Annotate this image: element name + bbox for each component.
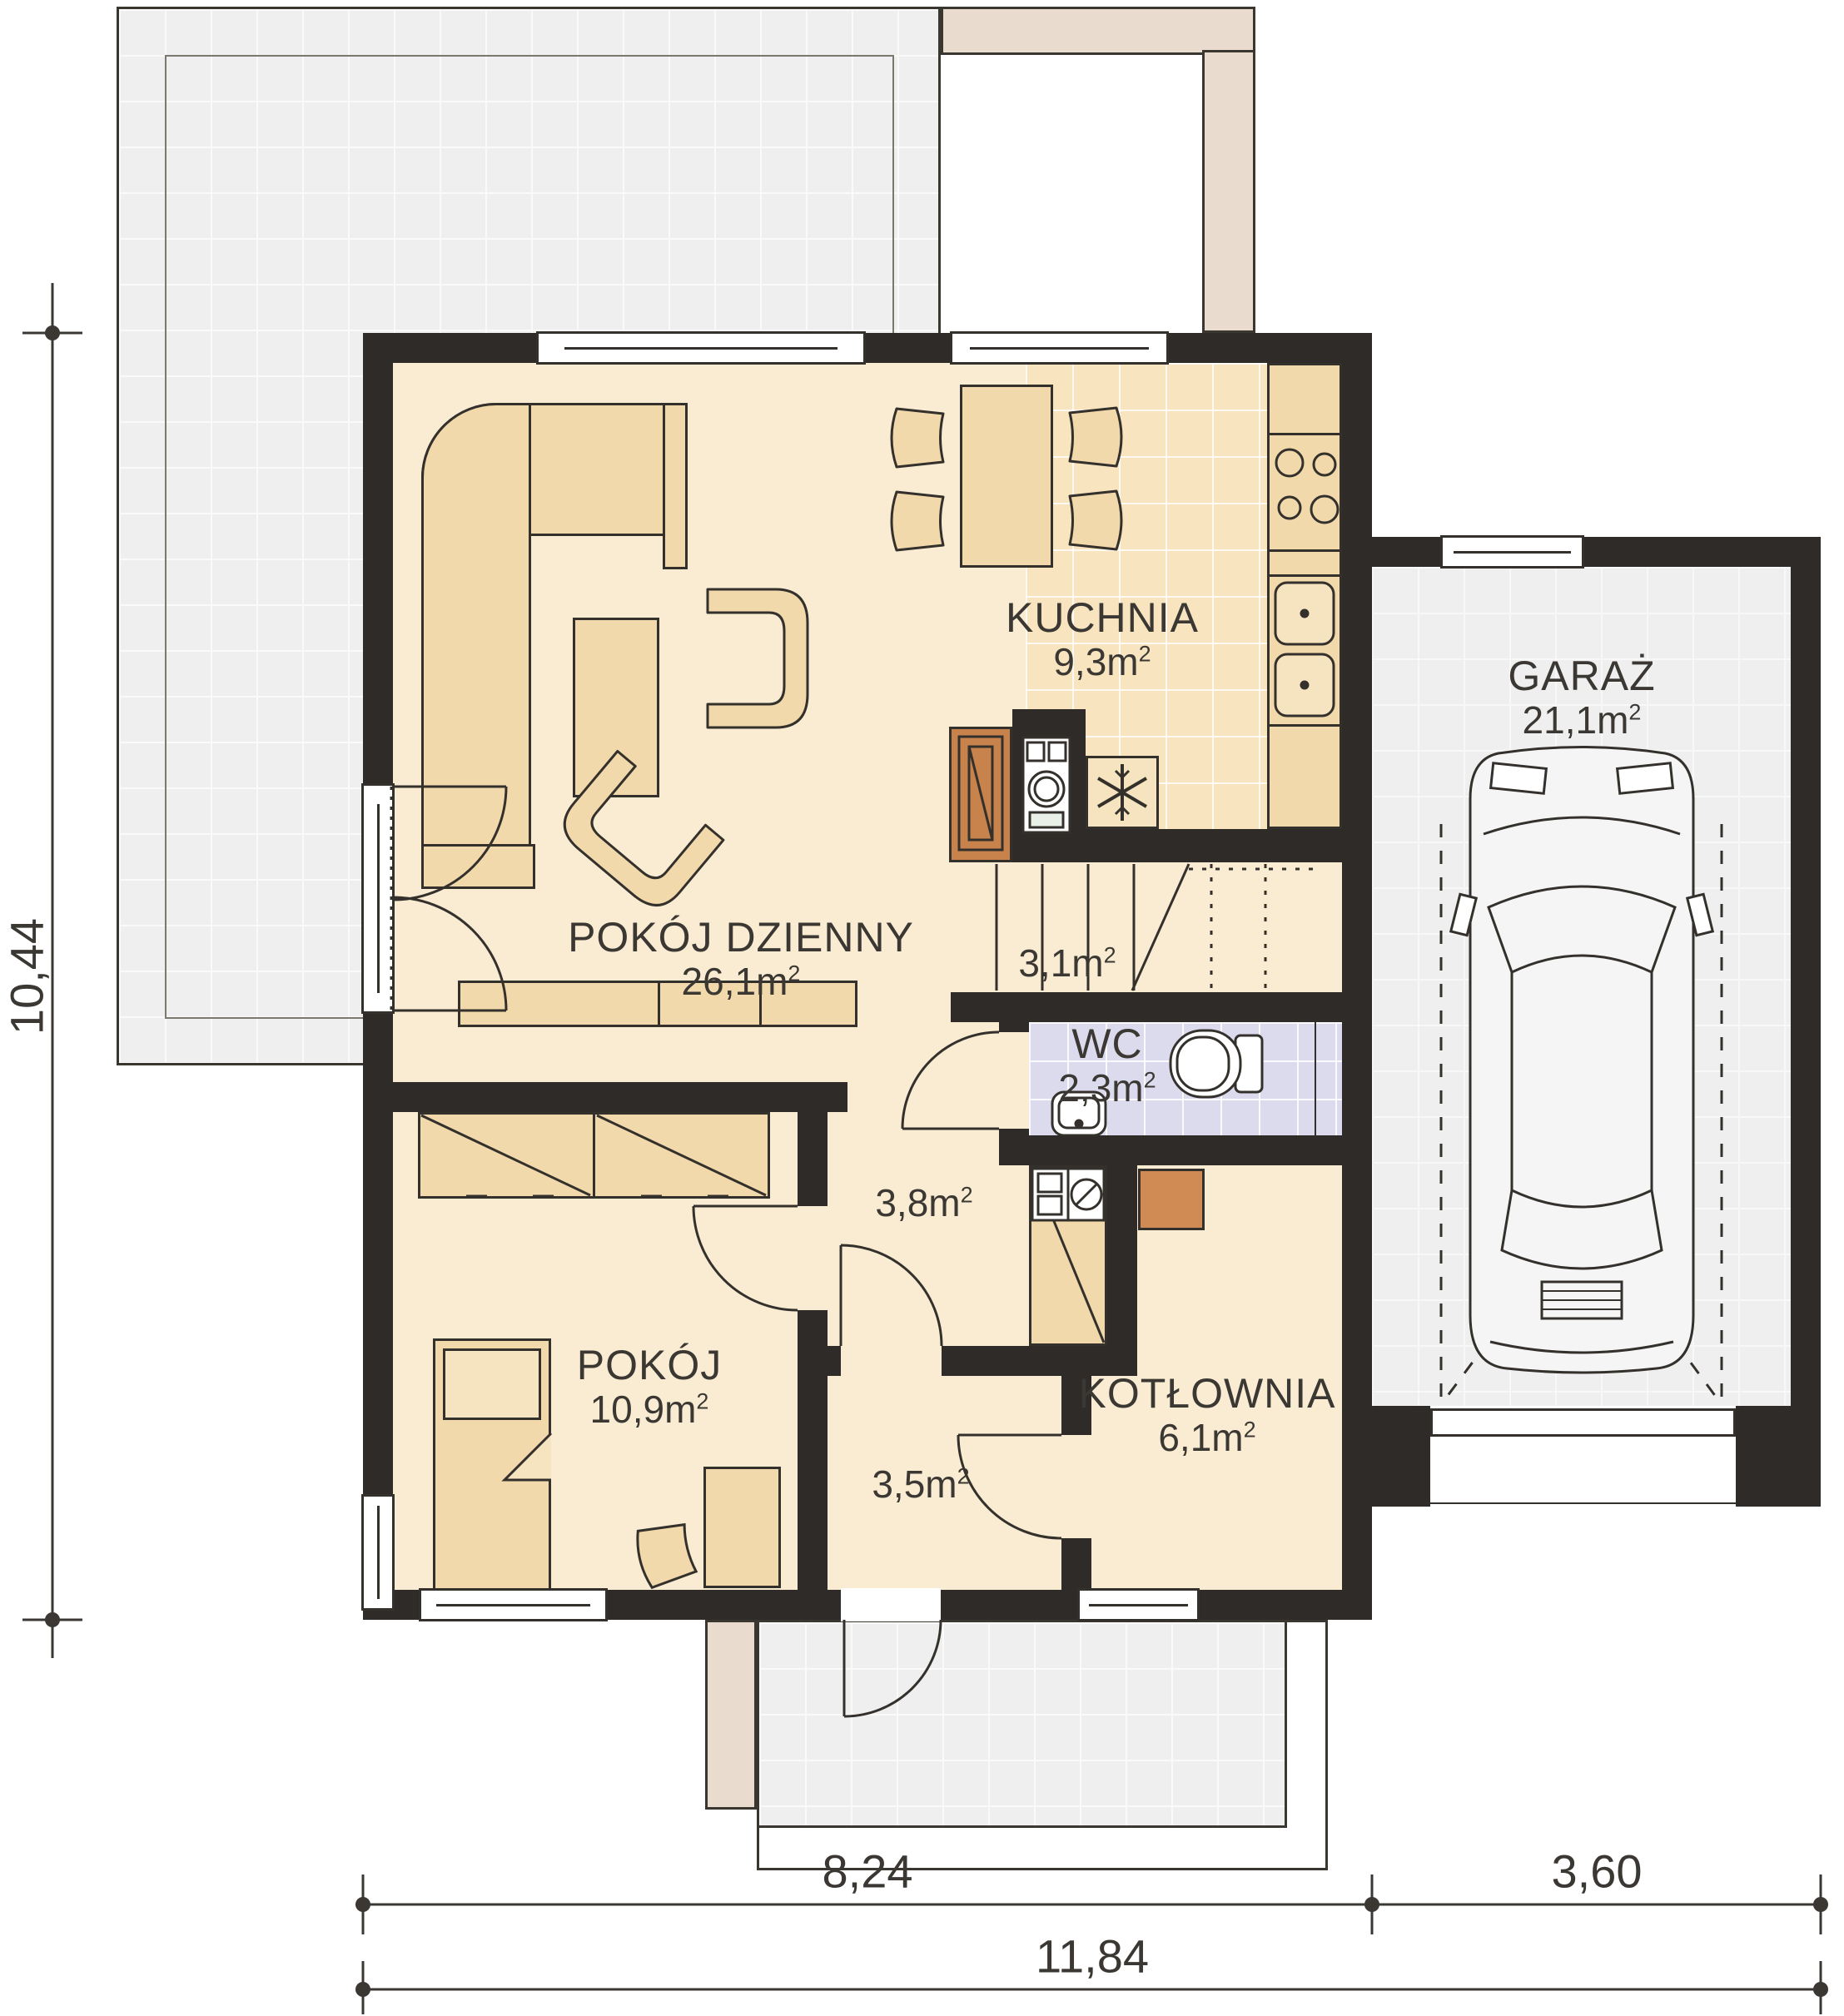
room-label-garage: GARAŻ 21,1m2 <box>1508 653 1655 742</box>
door-arc-balcony-bottom <box>393 897 506 1010</box>
floor-plan: POKÓJ DZIENNY 26,1m2 KUCHNIA 9,3m2 GARAŻ… <box>0 0 1844 2016</box>
door-arc-balcony-top <box>393 787 506 900</box>
dimension-left: 10,44 <box>0 918 54 1035</box>
room-label-vestibule: 3,5m2 <box>872 1463 969 1507</box>
car-icon <box>1451 747 1713 1373</box>
linework-layer <box>0 0 1844 2016</box>
door-arc-bedroom <box>693 1206 798 1310</box>
room-label-hall: 3,8m2 <box>875 1182 972 1225</box>
room-label-kitchen: KUCHNIA 9,3m2 <box>1006 594 1199 684</box>
armchair-icon <box>554 589 808 916</box>
door-arc-wc <box>902 1032 999 1129</box>
bed-fold <box>504 1433 551 1480</box>
room-area: 26,1m2 <box>568 961 914 1004</box>
room-label-living: POKÓJ DZIENNY 26,1m2 <box>568 914 914 1004</box>
desk-chair-icon <box>633 1520 697 1589</box>
wardrobe-hatch <box>421 1115 766 1196</box>
room-name: POKÓJ DZIENNY <box>568 914 914 961</box>
door-arc-boiler <box>958 1435 1061 1538</box>
door-arc-vestibule <box>841 1245 942 1346</box>
dimension-bottom-garage: 3,60 <box>1552 1845 1643 1899</box>
door-arc-entrance <box>844 1620 941 1716</box>
washing-machine-icon <box>1023 737 1070 832</box>
utility-sink-washer-icon <box>1032 1169 1104 1220</box>
room-label-wc: WC 2,3m2 <box>1058 1020 1156 1110</box>
dining-chair-icon <box>892 408 1121 550</box>
fireplace-inner <box>959 737 1002 850</box>
room-label-boiler: KOTŁOWNIA 6,1m2 <box>1078 1370 1335 1460</box>
dimension-bottom-total: 11,84 <box>1036 1929 1149 1984</box>
dimension-bottom-main: 8,24 <box>823 1845 913 1899</box>
room-label-stairs: 3,1m2 <box>1018 942 1116 986</box>
cooktop-icon <box>1276 449 1338 523</box>
snowflake-icon <box>1098 764 1146 821</box>
room-label-bedroom: POKÓJ 10,9m2 <box>577 1342 722 1432</box>
toilet-icon <box>1171 1030 1262 1097</box>
kitchen-sink-icon <box>1275 583 1334 716</box>
